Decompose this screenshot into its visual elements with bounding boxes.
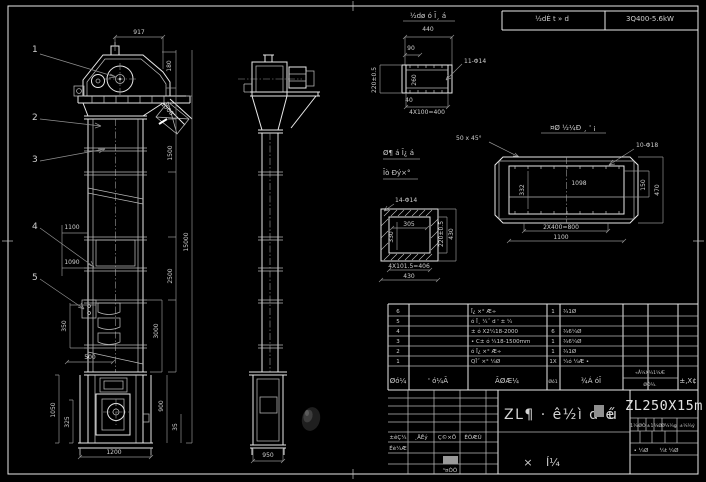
dim-4x101: 4X101.5=406 xyxy=(388,263,430,270)
rev-label-count: ¸ÄÊý xyxy=(414,433,428,441)
bom-no: 2 xyxy=(396,349,400,355)
drawing-title-suffix: ú xyxy=(608,407,618,423)
dim-2x400: 2X400=800 xyxy=(543,224,579,231)
weight-cell: Ø¼¼g xyxy=(661,422,677,429)
bom-qty: 6 xyxy=(551,329,555,335)
bom-name: ó Ī¸ ¼˝ d ' ± ¼ xyxy=(471,318,513,325)
balloon-1: 1 xyxy=(32,45,38,55)
detail-c-title: ¤Ø ½¼Ð ¸ ' ¡ xyxy=(550,124,596,132)
dim-1100: 1100 xyxy=(64,224,79,231)
smudge-artifact xyxy=(299,405,322,433)
sheets-total: • ¼Ø xyxy=(634,447,649,454)
front-view xyxy=(74,42,192,455)
bom-qty: 1 xyxy=(551,349,555,355)
dim-917: 917 xyxy=(133,29,145,36)
cad-drawing-canvas: ½dÈ t » d 3Q400-5.6kW xyxy=(0,0,706,482)
bom-qty: 1 xyxy=(551,339,555,345)
bom-header-qty: Øó1 xyxy=(548,378,557,385)
row-design-label: Éè¼Æ xyxy=(389,444,407,452)
bom-name: Ī¿ ×° Æ÷ xyxy=(471,308,497,315)
dim-90: 90 xyxy=(407,45,415,52)
row-process-label: ¹¤ÒÕ xyxy=(443,467,458,474)
detail-b-title-2: Īò Ðý×° xyxy=(383,168,411,177)
bom-header-name: ÃØÆ¼ xyxy=(495,376,519,385)
header-motor-spec: 3Q400-5.6kW xyxy=(626,15,674,23)
bom-no: 3 xyxy=(396,339,400,345)
dim-470: 470 xyxy=(654,184,661,196)
missing-glyph-box xyxy=(594,405,604,417)
dim-220: 220±0.5 xyxy=(371,67,378,93)
dim-1500: 1500 xyxy=(167,145,174,160)
bom-qty: 1 xyxy=(551,309,555,315)
bom-name: • C± ó ¼18-1500mm xyxy=(471,338,530,345)
stamp-left-glyph: × xyxy=(523,456,532,469)
dim-15000: 15000 xyxy=(183,232,190,251)
side-view: 950 xyxy=(238,55,323,463)
dim-350: 350 xyxy=(61,320,68,332)
dim-4x100: 4X100=400 xyxy=(409,109,445,116)
bom-header-row: Øó¼ ' ó¼Ã ÃØÆ¼ Øó1 ¾Á óĪ «Å¼X¼1¼Æ ØÓ¼. ±… xyxy=(390,369,697,388)
dim-1098: 1098 xyxy=(571,180,586,187)
grey-cell xyxy=(443,456,458,464)
rev-label-mark: ±êÇ¼ xyxy=(389,434,407,441)
bom-material: ¾6¼Ø xyxy=(563,328,582,335)
bom-row-2: 2 ó Ī¿ ×° Æ÷ 1 ¾1Ø xyxy=(396,348,577,355)
bom-row-6: 6 Ī¿ ×° Æ÷ 1 ¾1Ø xyxy=(396,308,577,315)
dim-330: 330 xyxy=(388,231,395,243)
bom-material: ¾6¼Ø xyxy=(563,338,582,345)
stage-cell-2: ØÒ xyxy=(638,422,646,429)
dim-950: 950 xyxy=(262,452,274,459)
stamp-right-glyph: Í¼ xyxy=(546,456,560,469)
dim-500: 500 xyxy=(84,354,96,361)
bom-row-4: 4 ± ó X2¼18-2000 6 ¾6¼Ø xyxy=(396,328,582,335)
bom-header-note: ±,X¢ xyxy=(679,377,696,385)
dim-220-flange: 220±0.5 xyxy=(438,221,445,247)
bom-table: 6 Ī¿ ×° Æ÷ 1 ¾1Ø 5 ó Ī¸ ¼˝ d ' ± ¼ 4 ± ó… xyxy=(388,304,698,390)
header-strip: ½dÈ t » d 3Q400-5.6kW xyxy=(502,11,698,30)
bom-row-3: 3 • C± ó ¼18-1500mm 1 ¾6¼Ø xyxy=(396,338,582,345)
sheet-number: ¼t ¼Ø xyxy=(660,447,680,454)
dim-180: 180 xyxy=(166,60,173,72)
detail-flange: Ø¶ á Ī¿ á Īò Ðý×° 50 x 45° 14-Φ14 305 33… xyxy=(379,135,519,282)
detail-a-title: ½dø ó Ī¸ á xyxy=(410,11,446,20)
dim-1050: 1050 xyxy=(50,402,57,417)
bom-header-code: ' ó¼Ã xyxy=(428,376,448,385)
detail-c-holes-label: 10-Φ18 xyxy=(636,142,658,149)
balloon-2: 2 xyxy=(32,113,38,123)
title-block: ±êÇ¼ ¸ÄÊý Ç©×Ö ÈÕÆÚ Éè¼Æ ¹¤ÒÕ ZL¶ · ê½ì … xyxy=(388,390,703,474)
dim-1090: 1090 xyxy=(64,259,79,266)
bom-material: ¾1Ø xyxy=(563,308,577,315)
balloon-4: 4 xyxy=(32,222,38,232)
bom-header-weight: «Å¼X¼1¼Æ xyxy=(635,369,665,376)
header-motor-label: ½dÈ t » d xyxy=(535,14,569,23)
dim-305: 305 xyxy=(403,221,415,228)
bom-name: ± ó X2¼18-2000 xyxy=(471,328,519,335)
bom-qty: 1X xyxy=(549,359,556,365)
bucket-elevator-drawing: ½dÈ t » d 3Q400-5.6kW xyxy=(0,0,706,482)
dim-430-right: 430 xyxy=(448,228,455,240)
dim-332: 332 xyxy=(519,184,526,196)
dim-150: 150 xyxy=(640,179,647,191)
rev-label-date: ÈÕÆÚ xyxy=(464,433,481,441)
bom-material: ¼ó ¼Æ • xyxy=(563,358,589,365)
stage-cell-1: 1¼ xyxy=(630,423,638,429)
balloon-3: 3 xyxy=(32,155,38,165)
bom-no: 4 xyxy=(396,329,400,335)
dim-1100-frame: 1100 xyxy=(553,234,568,241)
bom-header-weight2: ØÓ¼. xyxy=(643,381,656,388)
dim-260: 260 xyxy=(411,74,418,86)
model-number: ZL250X15m xyxy=(625,398,703,414)
bom-header-no: Øó¼ xyxy=(390,377,407,385)
detail-frame-box: ¤Ø ½¼Ð ¸ ' ¡ 10-Φ18 1098 332 150 470 2X4… xyxy=(495,124,663,243)
dim-1200: 1200 xyxy=(106,449,121,456)
detail-b-holes-label: 14-Φ14 xyxy=(395,197,417,204)
bom-material: ¾1Ø xyxy=(563,348,577,355)
dim-440: 440 xyxy=(422,26,434,33)
dim-325: 325 xyxy=(64,416,71,428)
dim-35: 35 xyxy=(172,423,179,431)
bom-name: ó Ī¿ ×° Æ÷ xyxy=(471,348,502,355)
bom-no: 1 xyxy=(396,359,400,365)
rev-label-sign: Ç©×Ö xyxy=(438,434,457,441)
balloon-5: 5 xyxy=(32,273,38,283)
chamfer-label: 50 x 45° xyxy=(456,135,482,142)
detail-a-holes-label: 11-Φ14 xyxy=(464,58,486,65)
bom-row-5: 5 ó Ī¸ ¼˝ d ' ± ¼ xyxy=(396,318,513,325)
detail-top-beam: ½dø ó Ī¸ á 440 90 11-Φ14 220±0.5 260 40 … xyxy=(371,11,486,116)
bom-name: QĪ˝ ×° ¼Ø xyxy=(471,358,501,365)
detail-b-title-1: Ø¶ á Ī¿ á xyxy=(383,148,414,157)
stage-cell-3: ±1 xyxy=(647,423,654,429)
dim-2500: 2500 xyxy=(167,268,174,283)
bom-header-material: ¾Á óĪ xyxy=(581,376,602,385)
dim-3000: 3000 xyxy=(153,323,160,338)
dim-40: 40 xyxy=(405,97,413,104)
scale-cell: ±¼¼ý xyxy=(679,422,695,429)
dim-430-bottom: 430 xyxy=(403,273,415,280)
bom-no: 6 xyxy=(396,309,400,315)
bom-no: 5 xyxy=(396,319,400,325)
dim-900: 900 xyxy=(158,400,165,412)
